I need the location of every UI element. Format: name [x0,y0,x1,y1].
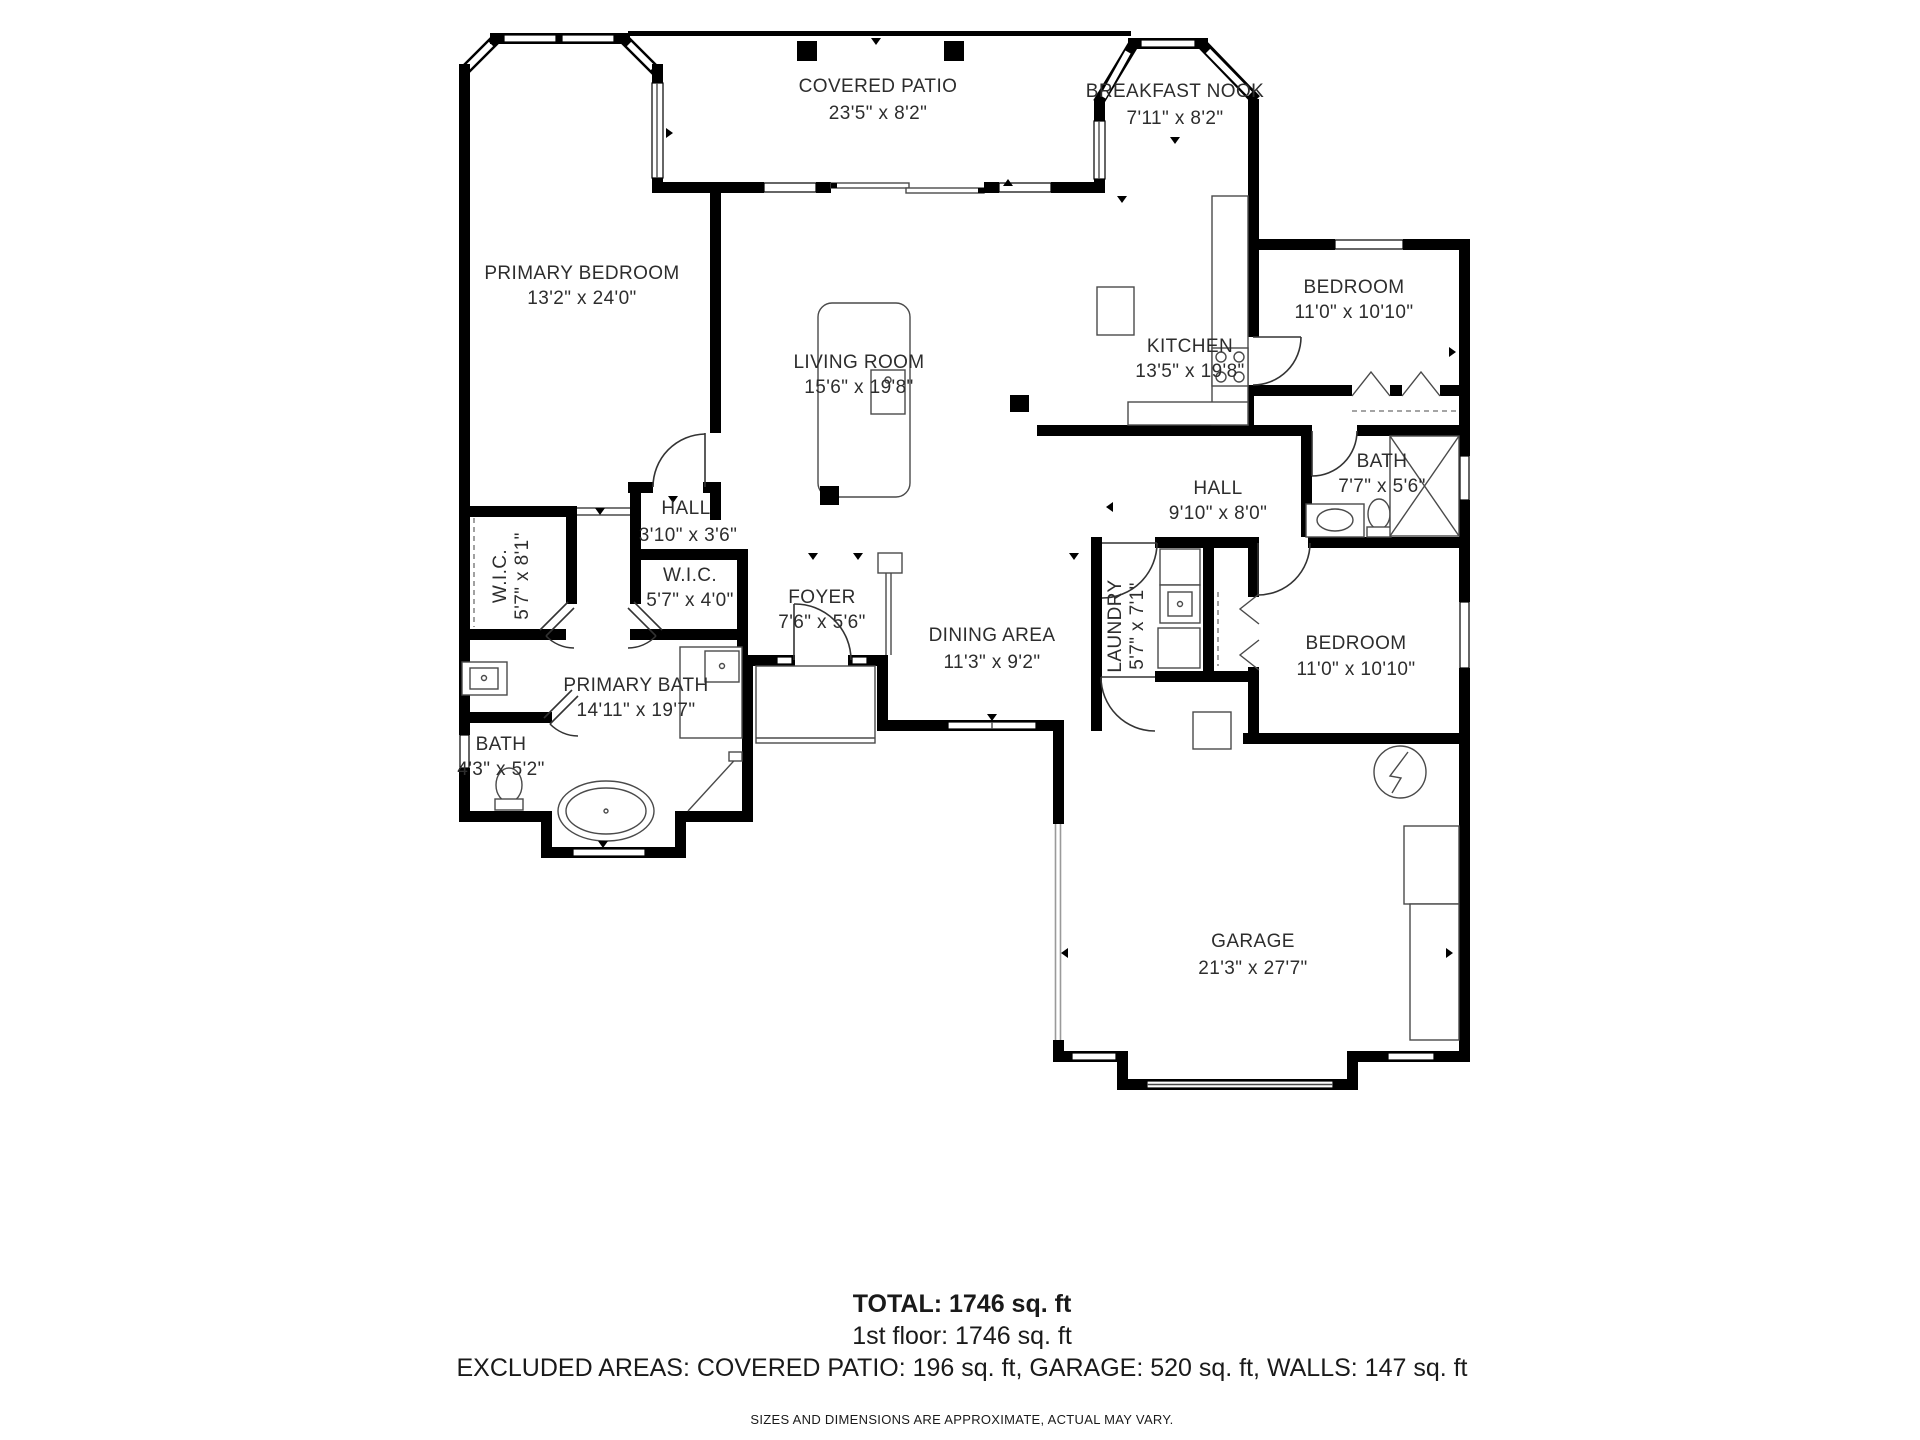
small-bath-door [544,690,578,736]
patio-post [944,41,964,61]
label-kitchen-dims: 13'5" x 19'8" [1135,361,1244,382]
label-bath-small-name: BATH [476,734,527,755]
label-wic-small-name: W.I.C. [663,565,717,586]
label-foyer-name: FOYER [788,587,855,608]
label-wic-large-dims: 5'7" x 8'1" [512,532,533,619]
label-wic-large: W.I.C. 5'7" x 8'1" [490,532,533,619]
label-primary-bedroom-name: PRIMARY BEDROOM [484,263,679,284]
tub [558,781,654,841]
label-primary-bedroom-dims: 13'2" x 24'0" [527,288,636,309]
footer-total: TOTAL: 1746 sq. ft [853,1290,1072,1318]
front-porch [756,666,875,743]
footer-excluded: EXCLUDED AREAS: COVERED PATIO: 196 sq. f… [456,1354,1467,1382]
fridge [1097,287,1134,335]
label-bedroom-top-name: BEDROOM [1304,277,1405,298]
label-covered-patio-dims: 23'5" x 8'2" [829,103,927,124]
patio-post [797,41,817,61]
post [1010,395,1029,412]
kitchen-counter-right [1212,196,1248,425]
post [820,486,839,505]
label-primary-bath-dims: 14'11" x 19'7" [577,700,696,721]
label-breakfast-nook-name: BREAKFAST NOOK [1086,81,1264,102]
label-garage-name: GARAGE [1211,931,1295,952]
label-laundry-dims: 5'7" x 7'1" [1127,582,1148,669]
label-wic-large-name: W.I.C. [490,549,511,603]
water-heater [1374,746,1426,798]
label-bedroom-bottom-name: BEDROOM [1306,633,1407,654]
toilet [1368,499,1390,529]
wic1-door [540,602,574,648]
label-dining-area-dims: 11'3" x 9'2" [943,652,1040,673]
label-bath-right-dims: 7'7" x 5'6" [1338,476,1425,497]
label-garage-dims: 21'3" x 27'7" [1198,958,1307,979]
label-covered-patio-name: COVERED PATIO [799,76,958,97]
sliding-door [831,183,984,193]
label-primary-bath-name: PRIMARY BATH [563,675,708,696]
label-bath-small-dims: 4'3" x 5'2" [457,759,544,780]
patio-roof-edge [628,31,1131,61]
label-breakfast-nook-dims: 7'11" x 8'2" [1126,108,1223,129]
footer-floor1: 1st floor: 1746 sq. ft [852,1322,1072,1350]
label-hall-small-name: HALL [661,498,710,519]
laundry-fixtures [1158,549,1200,668]
label-laundry: LAUNDRY 5'7" x 7'1" [1105,579,1148,672]
label-laundry-name: LAUNDRY [1105,579,1126,672]
kitchen-counter-bottom [1128,402,1248,425]
label-bath-right-name: BATH [1357,451,1408,472]
label-wic-small-dims: 5'7" x 4'0" [646,590,733,611]
utility-box [1193,712,1231,749]
label-hall-main-name: HALL [1193,478,1242,499]
floor-plan-svg: COVERED PATIO 23'5" x 8'2" BREAKFAST NOO… [0,0,1920,1440]
exterior-walls [459,33,1470,1090]
label-foyer-dims: 7'6" x 5'6" [778,612,865,633]
floor-plan-page: COVERED PATIO 23'5" x 8'2" BREAKFAST NOO… [0,0,1920,1440]
label-kitchen-name: KITCHEN [1147,336,1233,357]
garage-door [1147,1081,1333,1088]
label-living-room-name: LIVING ROOM [793,352,924,373]
footer-disclaimer: SIZES AND DIMENSIONS ARE APPROXIMATE, AC… [750,1412,1173,1427]
workbench [1410,904,1459,1040]
garage-fixtures [1193,712,1459,1040]
label-dining-area-name: DINING AREA [929,625,1056,646]
label-hall-main-dims: 9'10" x 8'0" [1169,503,1267,524]
footer-summary: TOTAL: 1746 sq. ft 1st floor: 1746 sq. f… [456,1290,1467,1427]
label-bedroom-bottom-dims: 11'0" x 10'10" [1297,659,1416,680]
label-living-room-dims: 15'6" x 19'8" [804,377,913,398]
workbench [1404,826,1459,904]
label-bedroom-top-dims: 11'0" x 10'10" [1295,302,1414,323]
label-hall-small-dims: 3'10" x 3'6" [639,525,737,546]
foyer-column [878,553,902,655]
